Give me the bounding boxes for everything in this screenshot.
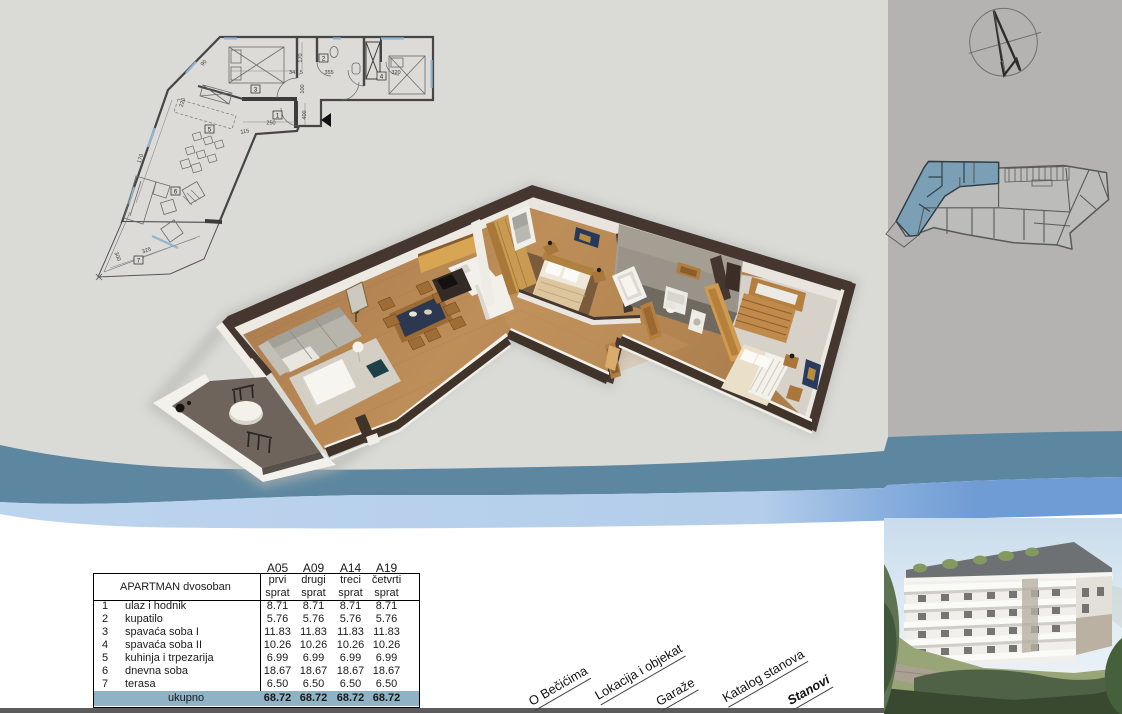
svg-text:250: 250: [266, 121, 275, 127]
svg-text:170: 170: [298, 53, 304, 62]
svg-text:4: 4: [380, 74, 384, 81]
svg-text:115: 115: [240, 128, 250, 135]
svg-text:341,5: 341,5: [289, 70, 303, 76]
svg-text:2: 2: [322, 56, 326, 63]
svg-text:5: 5: [208, 127, 212, 134]
svg-text:400: 400: [302, 110, 308, 119]
svg-text:100: 100: [300, 84, 306, 93]
svg-text:3: 3: [254, 87, 258, 94]
svg-text:320: 320: [391, 70, 400, 76]
svg-text:355: 355: [324, 70, 333, 76]
svg-text:1: 1: [276, 113, 280, 120]
svg-text:6: 6: [174, 189, 178, 196]
svg-text:7: 7: [137, 258, 141, 265]
